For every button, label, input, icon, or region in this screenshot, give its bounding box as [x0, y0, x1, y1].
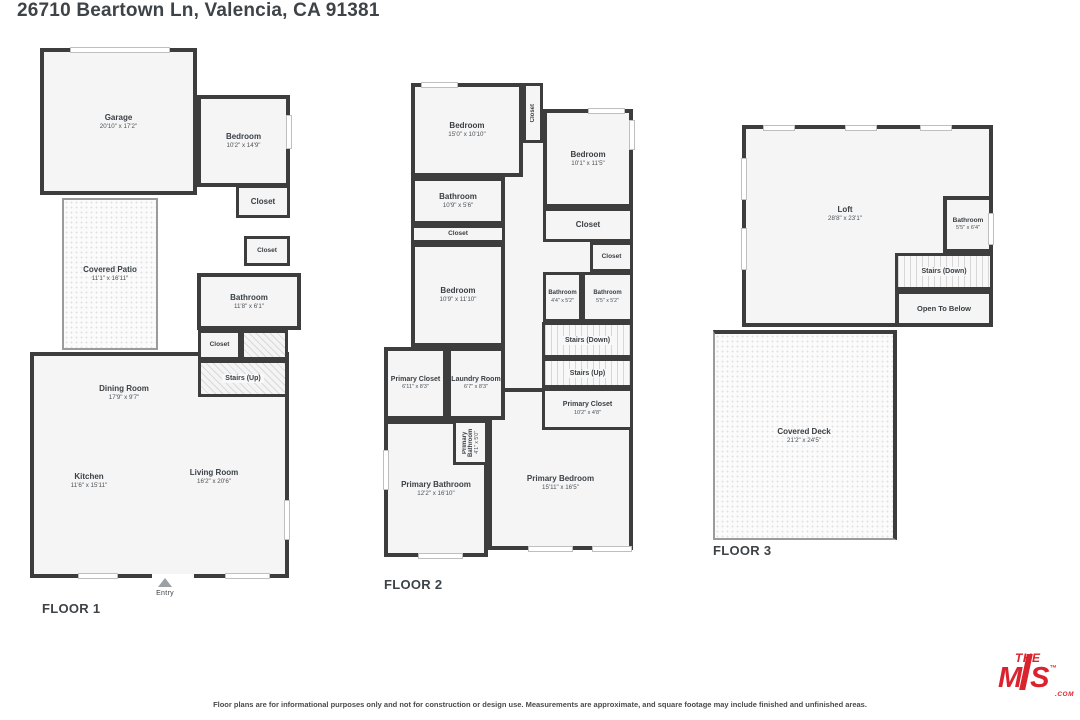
window: [763, 125, 795, 131]
window: [286, 115, 292, 149]
room-bedroom-f2-a: Bedroom15'0" x 10'10": [411, 83, 523, 177]
window: [920, 125, 952, 131]
floor-1-plan: Dining Room 17'9" x 9'7" Kitchen 11'6" x…: [30, 45, 305, 620]
room-bedroom-f2-c: Bedroom10'9" x 11'10": [411, 243, 505, 347]
room-closet: Closet: [244, 236, 290, 266]
room-dining-room: Dining Room 17'9" x 9'7": [64, 384, 184, 402]
room-dims: 10'9" x 11'10": [440, 296, 477, 304]
room-label: Closet: [251, 197, 275, 207]
room-dims: 6'7" x 8'3": [451, 384, 500, 391]
room-dims: 17'9" x 9'7": [64, 394, 184, 402]
room-label: Bathroom: [548, 290, 576, 298]
room-dims: 5'5" x 5'2": [593, 298, 621, 305]
room-label: Bathroom: [953, 217, 984, 225]
room-label: Stairs (Down): [562, 336, 613, 345]
room-primary-closet-b: Primary Closet10'2" x 4'8": [542, 388, 633, 430]
room-dims: 10'9" x 5'6": [439, 202, 477, 210]
room-dims: 21'2" x 24'5": [777, 437, 830, 445]
window: [528, 546, 573, 552]
entry-arrow-icon: [158, 578, 172, 587]
room-label: Primary Bathroom: [401, 480, 471, 490]
room-dims: 5'5" x 6'4": [953, 225, 984, 232]
room-label: Dining Room: [64, 384, 184, 394]
room-covered-deck: Covered Deck21'2" x 24'5": [713, 330, 897, 540]
floor-2-plan: Bedroom15'0" x 10'10" Closet Bedroom10'1…: [383, 78, 638, 593]
room-covered-patio: Covered Patio11'1" x 16'11": [62, 198, 158, 350]
window: [418, 553, 463, 559]
room-closet: Closet: [198, 330, 241, 360]
room-dims: 10'1" x 11'5": [570, 160, 605, 168]
floor-3-plan: Loft28'8" x 23'1" Bathroom5'5" x 6'4" St…: [705, 123, 997, 563]
room-dims: 11'1" x 16'11": [83, 275, 137, 283]
the-mls-logo: THE M S ™ .COM: [998, 652, 1074, 698]
room-stairs-down-f2: Stairs (Down): [542, 322, 633, 358]
room-kitchen: Kitchen 11'6" x 15'11": [34, 472, 144, 490]
room-dims: 20'10" x 17'2": [100, 123, 137, 131]
room-dims: 28'8" x 23'1": [828, 215, 862, 223]
room-label: Garage: [100, 113, 137, 123]
room-dims: 16'2" x 20'6": [149, 478, 279, 486]
page-title: 26710 Beartown Ln, Valencia, CA 91381: [17, 0, 380, 22]
room-primary-closet-a: Primary Closet6'11" x 8'3": [384, 347, 447, 420]
room-closet: Closet: [236, 185, 290, 218]
room-dims: 6'11" x 8'3": [391, 384, 440, 391]
logo-m-text: M: [998, 667, 1022, 690]
room-garage: Garage20'10" x 17'2": [40, 48, 197, 195]
room-label: Primary Closet: [391, 376, 440, 385]
room-closet-vertical: Closet: [523, 83, 543, 143]
room-dims: 10'2" x 14'9": [226, 142, 261, 150]
room-living-room: Living Room 16'2" x 20'6": [149, 468, 279, 486]
window: [225, 573, 270, 579]
room-label: Living Room: [149, 468, 279, 478]
room-label: Loft: [828, 205, 862, 215]
room-label: Stairs (Up): [567, 369, 608, 378]
room-label: Covered Deck: [777, 427, 830, 437]
floor-2-label: FLOOR 2: [384, 577, 442, 592]
room-dims: 4'1" x 5'0": [474, 431, 480, 454]
room-label: Kitchen: [34, 472, 144, 482]
room-label: Bedroom: [570, 150, 605, 160]
room-stairs-up-f1: Stairs (Up): [198, 360, 288, 397]
entry-label: Entry: [135, 590, 195, 597]
room-label: Stairs (Down): [918, 267, 969, 276]
room-label: Closet: [602, 253, 622, 261]
room-label: Bathroom: [230, 293, 268, 303]
room-dims: 15'0" x 10'10": [448, 131, 485, 139]
room-label: Bathroom: [593, 290, 621, 298]
room-label: Primary Bathroom: [462, 423, 474, 462]
window: [284, 500, 290, 540]
room-primary-bathroom-small: Primary Bathroom 4'1" x 5'0": [453, 420, 488, 465]
footer-disclaimer: Floor plans are for informational purpos…: [0, 700, 1080, 709]
room-label: Bathroom: [439, 192, 477, 202]
logo-s-text: S: [1030, 667, 1049, 690]
room-dims: 11'8" x 6'1": [230, 303, 268, 311]
room-label: Bedroom: [440, 286, 477, 296]
room-bedroom-f1: Bedroom10'2" x 14'9": [197, 95, 290, 187]
room-label: Closet: [210, 341, 230, 349]
floor-3-label: FLOOR 3: [713, 543, 771, 558]
room-dims: 10'2" x 4'8": [563, 410, 612, 417]
room-bathroom-small-b: Bathroom5'5" x 5'2": [582, 272, 633, 322]
window: [383, 450, 389, 490]
room-open-to-below: Open To Below: [895, 290, 993, 327]
window: [588, 108, 625, 114]
room-label: Stairs (Up): [222, 374, 263, 383]
room-bathroom-f2-a: Bathroom10'9" x 5'6": [411, 177, 505, 225]
room-stairs-down-f3: Stairs (Down): [895, 253, 993, 290]
room-dims: 12'2" x 16'10": [401, 490, 471, 498]
room-dims: 4'4" x 5'2": [548, 298, 576, 305]
window: [592, 546, 632, 552]
room-dims: 15'11" x 16'5": [527, 484, 594, 492]
stairs-hatch: [241, 330, 288, 360]
room-label: Closet: [257, 247, 277, 255]
room-bathroom-small-a: Bathroom4'4" x 5'2": [543, 272, 582, 322]
window: [70, 47, 170, 53]
room-label: Covered Patio: [83, 265, 137, 275]
room-bedroom-f2-b: Bedroom10'1" x 11'5": [543, 109, 633, 208]
room-label: Open To Below: [917, 304, 971, 313]
window: [741, 158, 747, 200]
window: [629, 120, 635, 150]
floor-1-label: FLOOR 1: [42, 601, 100, 616]
room-stairs-up-f2: Stairs (Up): [542, 358, 633, 388]
room-label: Laundry Room: [451, 376, 500, 385]
window: [78, 573, 118, 579]
logo-trademark: ™: [1050, 666, 1057, 672]
room-laundry-room: Laundry Room6'7" x 8'3": [447, 347, 505, 420]
window: [421, 82, 458, 88]
room-label: Closet: [448, 230, 468, 238]
outline-patch: [543, 78, 637, 109]
room-label: Primary Bedroom: [527, 474, 594, 484]
room-label: Primary Closet: [563, 401, 612, 410]
window: [741, 228, 747, 270]
room-dims: 11'6" x 15'11": [34, 482, 144, 490]
room-label: Bedroom: [448, 121, 485, 131]
room-closet: Closet: [411, 225, 505, 243]
room-label: Bedroom: [226, 132, 261, 142]
room-closet: Closet: [543, 208, 633, 242]
room-label: Closet: [530, 104, 536, 122]
floor-plan-page: 26710 Beartown Ln, Valencia, CA 91381 Di…: [0, 0, 1080, 720]
room-bathroom-f3: Bathroom5'5" x 6'4": [943, 196, 993, 253]
room-bathroom-f1: Bathroom11'8" x 6'1": [197, 273, 301, 330]
window: [845, 125, 877, 131]
room-label: Closet: [576, 220, 600, 230]
window: [988, 213, 994, 245]
room-closet: Closet: [590, 242, 633, 272]
